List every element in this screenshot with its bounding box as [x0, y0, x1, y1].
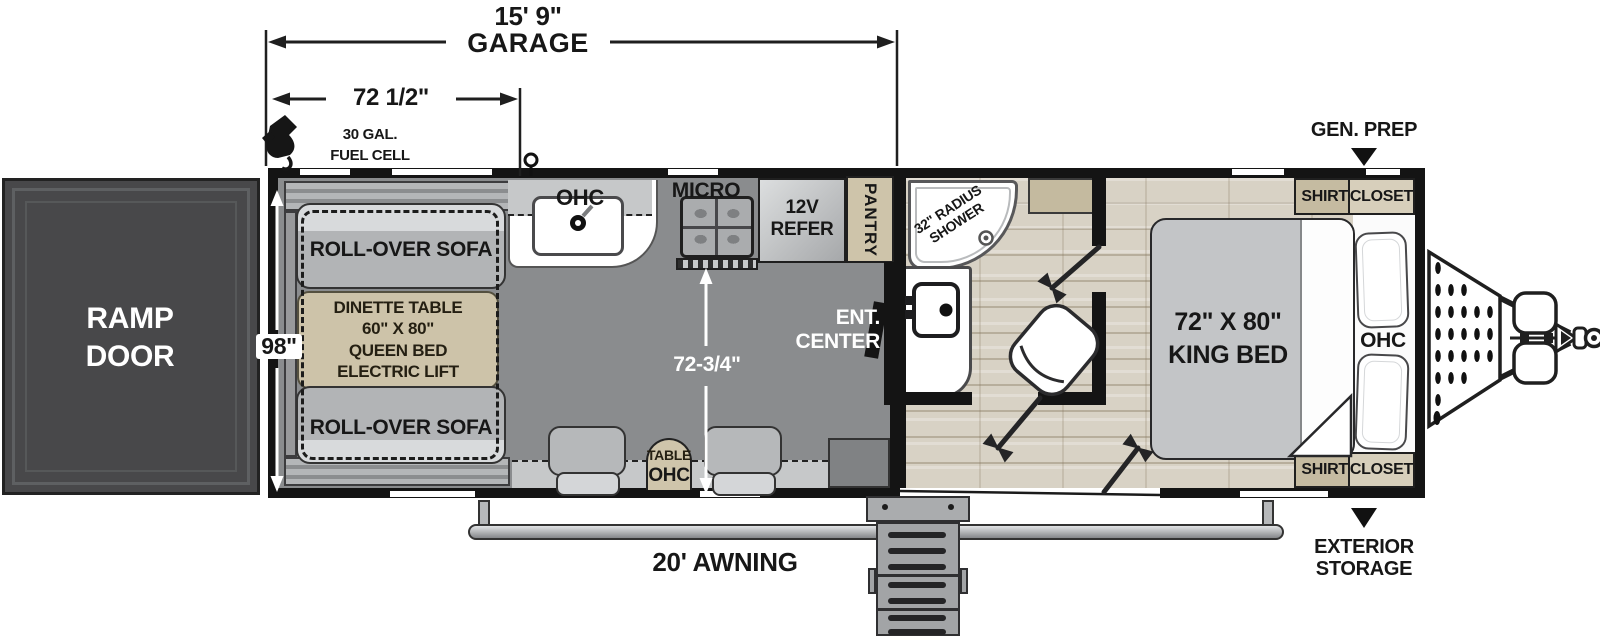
- fuel-cell-label-line2: FUEL CELL: [320, 148, 420, 164]
- step-tread-4: [888, 582, 946, 588]
- entry-steps-body: [876, 522, 960, 636]
- vanity-handle-bottom: [905, 310, 912, 319]
- step-tread-2: [888, 548, 946, 554]
- step-screw-left: [882, 504, 888, 510]
- window-bottom-1: [390, 491, 475, 497]
- refrigerator-label: 12V REFER: [758, 197, 846, 242]
- stove-vent-grille: [676, 258, 758, 270]
- awning-support-right: [1262, 500, 1274, 526]
- vanity-sink: [912, 282, 960, 338]
- step-tread-7: [888, 629, 946, 635]
- gen-prep-label: GEN. PREP: [1303, 120, 1425, 142]
- dinette-label: DINETTE TABLE 60" X 80" QUEEN BED ELECTR…: [297, 297, 499, 382]
- pantry-label-text: PANTRY: [861, 183, 879, 257]
- vanity-handle-top: [905, 296, 912, 305]
- stove-microwave: [680, 196, 754, 258]
- garage-storage-block: [828, 438, 890, 488]
- exterior-storage-label: EXTERIOR STORAGE: [1301, 536, 1427, 581]
- step-screw-right: [948, 504, 954, 510]
- pillow-bottom-crease: [1362, 360, 1403, 443]
- chair-right: [704, 426, 782, 476]
- pillow-top: [1354, 231, 1409, 329]
- exterior-storage-line1: EXTERIOR: [1314, 536, 1414, 558]
- garage-partial-value: 72 1/2": [326, 85, 456, 111]
- awning-label: 20' AWNING: [620, 548, 830, 576]
- refer-line2: REFER: [771, 219, 834, 240]
- bath-wall-lower: [1092, 292, 1106, 404]
- microwave-label: MICRO: [656, 180, 756, 203]
- step-tab-left: [868, 568, 876, 594]
- exterior-storage-line2: STORAGE: [1316, 558, 1412, 580]
- king-bed-line2: KING BED: [1168, 341, 1288, 369]
- window-top-3: [668, 169, 718, 175]
- dinette-line3: QUEEN BED: [349, 341, 447, 360]
- entertainment-center-wall: [884, 262, 906, 405]
- window-top-4: [1232, 169, 1284, 175]
- king-bed-line1: 72" X 80": [1174, 308, 1281, 336]
- shirt-closet-top: SHIRT CLOSET: [1294, 178, 1415, 215]
- dinette-line4: ELECTRIC LIFT: [337, 362, 459, 381]
- propane-tanks: [1510, 293, 1562, 383]
- ent-label-line2: CENTER: [795, 330, 880, 353]
- bathroom-cabinet: [1028, 178, 1098, 214]
- garage-length-word: GARAGE: [448, 29, 608, 58]
- ramp-door-label-line1: RAMP: [86, 302, 173, 335]
- entry-steps-platform: [866, 496, 970, 522]
- chair-right-footrest: [712, 472, 776, 496]
- kitchen-ohc-label: OHC: [530, 186, 630, 210]
- step-section-line-2: [878, 608, 958, 611]
- shirt-closet-top-word1: SHIRT: [1301, 188, 1348, 205]
- hitch-a-frame: [1500, 298, 1570, 378]
- bath-wall-top: [1092, 178, 1106, 246]
- hitch-triangle: [1556, 324, 1576, 352]
- window-top-2: [392, 169, 492, 175]
- rollover-sofa-top-label: ROLL-OVER SOFA: [296, 239, 506, 262]
- rollover-sofa-bottom-label: ROLL-OVER SOFA: [296, 417, 506, 440]
- ramp-door-label: RAMP DOOR: [40, 300, 220, 375]
- ramp-door-label-line2: DOOR: [86, 340, 175, 373]
- table-ohc-label: OHC: [642, 466, 696, 487]
- gen-prep-pointer: [1351, 148, 1377, 166]
- table-label: TABLE: [642, 448, 696, 463]
- step-tread-5: [888, 598, 946, 604]
- bath-wall-stub-right: [1038, 392, 1106, 405]
- shirt-closet-bottom-cell2: CLOSET: [1350, 454, 1413, 486]
- body-width-value: 98": [256, 334, 302, 359]
- king-bed-label: 72" X 80" KING BED: [1128, 306, 1328, 371]
- step-section-line-1: [878, 574, 958, 577]
- rock-guard-panel: [1429, 252, 1500, 426]
- bedroom-ohc-label: OHC: [1352, 330, 1414, 353]
- window-top-5: [1366, 169, 1400, 175]
- awning-support-left: [478, 500, 490, 526]
- window-top-1: [300, 169, 350, 175]
- floorplan-canvas: RAMP DOOR ROLL-OVER SOFA DINETTE TABLE 6…: [0, 0, 1600, 640]
- pantry-label: PANTRY: [846, 178, 894, 262]
- garage-length-value: 15' 9": [448, 2, 608, 30]
- hitch-coupler: [1574, 328, 1600, 348]
- shirt-closet-bottom-cell1: SHIRT: [1296, 454, 1350, 486]
- shirt-closet-top-word2: CLOSET: [1350, 188, 1413, 205]
- garage-interior-value: 72-3/4": [652, 354, 762, 377]
- shirt-closet-bottom-word2: CLOSET: [1350, 461, 1413, 478]
- dinette-line1: DINETTE TABLE: [334, 298, 463, 317]
- pillow-bottom: [1354, 353, 1409, 451]
- window-bottom-3: [1240, 491, 1328, 497]
- pillow-top-crease: [1362, 238, 1403, 321]
- step-tread-6: [888, 615, 946, 621]
- exterior-storage-pointer: [1351, 508, 1377, 528]
- shirt-closet-top-cell1: SHIRT: [1296, 180, 1350, 213]
- chair-left-footrest: [556, 472, 620, 496]
- fuel-pump-icon: [262, 115, 297, 169]
- step-tab-right: [960, 568, 968, 594]
- bath-wall-stub-left: [906, 392, 972, 405]
- step-tread-1: [888, 532, 946, 538]
- shirt-closet-bottom-word1: SHIRT: [1301, 461, 1348, 478]
- step-tread-3: [888, 564, 946, 570]
- entertainment-center-label: ENT. CENTER: [784, 306, 880, 354]
- ent-label-line1: ENT.: [836, 306, 880, 329]
- fuel-cell-label-line1: 30 GAL.: [325, 127, 415, 143]
- refer-line1: 12V: [786, 197, 819, 218]
- shirt-closet-top-cell2: CLOSET: [1350, 180, 1413, 213]
- chair-left: [548, 426, 626, 476]
- dinette-line2: 60" X 80": [362, 319, 434, 338]
- shirt-closet-bottom: SHIRT CLOSET: [1294, 452, 1415, 488]
